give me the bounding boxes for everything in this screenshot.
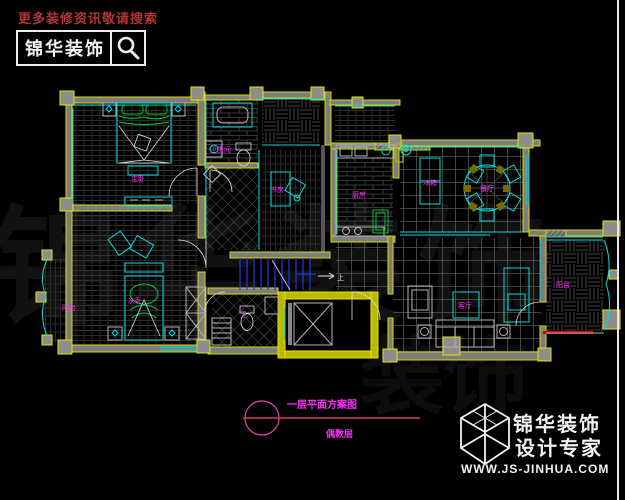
floor-shower-room bbox=[205, 168, 258, 250]
page-edge-line bbox=[617, 0, 619, 500]
floor-top-hall bbox=[335, 106, 395, 142]
label-bathroom: 卫生间 bbox=[210, 145, 231, 154]
label-left-balcony: 阳台 bbox=[62, 303, 76, 312]
elevator bbox=[278, 292, 378, 358]
label-dining: 餐厅 bbox=[480, 184, 494, 193]
label-living: 客厅 bbox=[458, 301, 472, 310]
floor-second-bedroom bbox=[72, 211, 198, 345]
label-master-bedroom: 主卧 bbox=[131, 174, 145, 183]
footer-website[interactable]: WWW.JS-JINHUA.COM bbox=[461, 462, 609, 476]
label-kitchen: 厨房 bbox=[352, 190, 366, 199]
floor-hallway bbox=[336, 242, 390, 290]
floor-left-balcony bbox=[44, 258, 66, 343]
label-fridge: 冰箱 bbox=[423, 178, 437, 187]
drawing-subtitle-text: 偶数层 bbox=[326, 428, 353, 439]
floor-foyer bbox=[262, 98, 320, 143]
magnifier-icon[interactable] bbox=[112, 32, 144, 64]
footer-logo: 锦华装饰 设计专家 WWW.JS-JINHUA.COM bbox=[455, 392, 615, 492]
floor-living bbox=[393, 238, 541, 352]
drawing-title-text: 一层平面方案图 bbox=[287, 398, 357, 411]
header-logo-box[interactable]: 锦华装饰 bbox=[16, 30, 146, 66]
cube-logo-icon bbox=[457, 402, 513, 468]
label-right-balcony: 阳台 bbox=[556, 280, 570, 289]
label-second-bedroom: 次卧 bbox=[128, 296, 142, 305]
floor-wc bbox=[212, 294, 276, 347]
footer-brand-line2: 设计专家 bbox=[515, 432, 603, 461]
header-logo-text: 锦华装饰 bbox=[18, 35, 110, 61]
page: 锦华装饰 装饰 bbox=[0, 0, 625, 500]
search-hint-text: 更多装修资讯敬请搜索 bbox=[18, 8, 158, 27]
stair-up-label: 上 bbox=[337, 273, 344, 282]
label-wc: 卫 bbox=[240, 311, 247, 319]
label-study: 书房 bbox=[270, 185, 284, 194]
floor-right-balcony bbox=[546, 240, 604, 332]
